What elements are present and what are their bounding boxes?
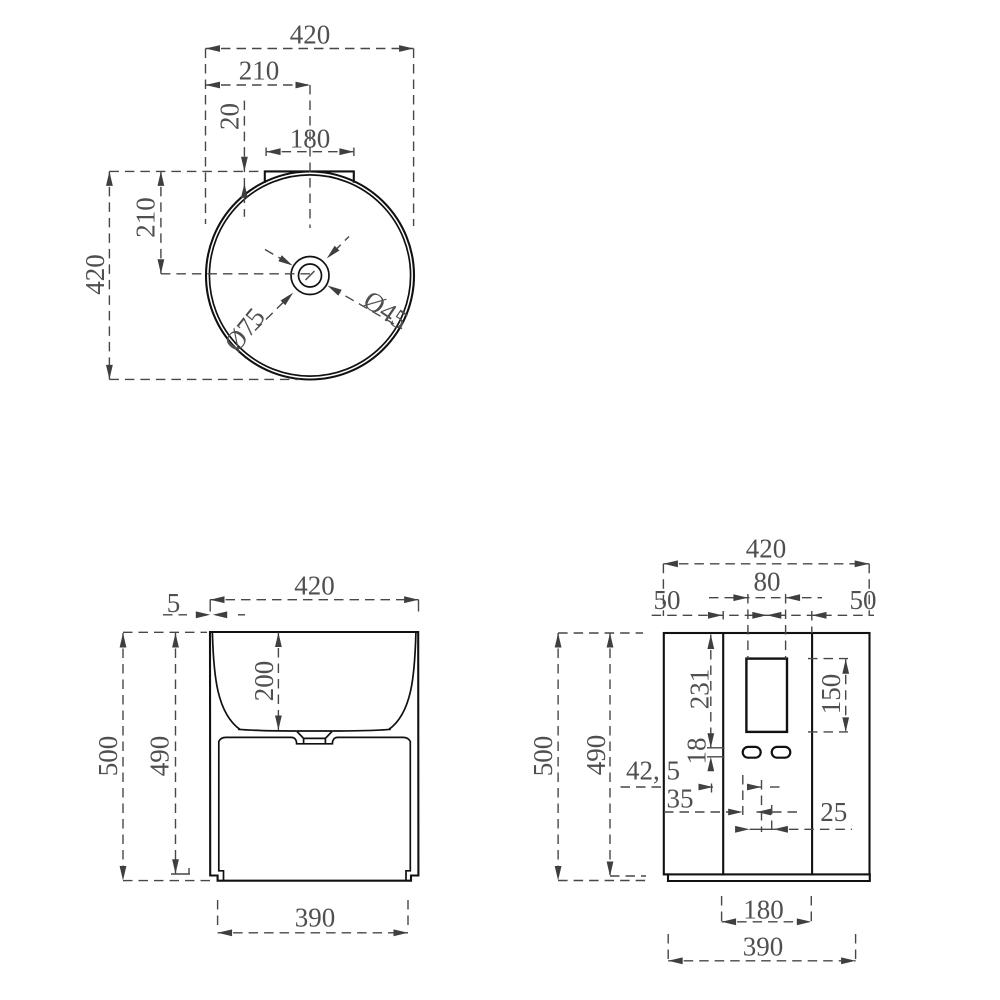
svg-text:180: 180 bbox=[290, 124, 331, 154]
svg-text:50: 50 bbox=[654, 585, 681, 615]
svg-text:200: 200 bbox=[249, 661, 279, 702]
svg-text:420: 420 bbox=[294, 570, 335, 600]
svg-text:180: 180 bbox=[743, 895, 784, 925]
svg-text:Ø45: Ø45 bbox=[358, 285, 413, 336]
svg-text:490: 490 bbox=[145, 736, 175, 777]
svg-text:390: 390 bbox=[295, 903, 336, 933]
svg-text:210: 210 bbox=[239, 56, 280, 86]
svg-text:500: 500 bbox=[93, 736, 123, 777]
svg-text:490: 490 bbox=[581, 735, 611, 776]
svg-text:390: 390 bbox=[743, 932, 784, 962]
svg-text:5: 5 bbox=[167, 588, 181, 618]
svg-text:420: 420 bbox=[80, 254, 110, 295]
svg-text:42, 5: 42, 5 bbox=[626, 756, 680, 786]
svg-text:20: 20 bbox=[215, 103, 245, 130]
svg-text:50: 50 bbox=[850, 585, 877, 615]
svg-text:150: 150 bbox=[816, 674, 846, 715]
svg-text:420: 420 bbox=[290, 20, 331, 50]
svg-text:35: 35 bbox=[667, 784, 694, 814]
svg-text:210: 210 bbox=[131, 197, 161, 238]
svg-text:Ø75: Ø75 bbox=[218, 302, 271, 357]
svg-text:500: 500 bbox=[528, 736, 558, 777]
svg-text:80: 80 bbox=[754, 567, 781, 597]
svg-text:420: 420 bbox=[746, 534, 787, 564]
svg-text:18: 18 bbox=[682, 738, 712, 765]
svg-text:231: 231 bbox=[685, 669, 715, 710]
svg-text:25: 25 bbox=[820, 797, 847, 827]
